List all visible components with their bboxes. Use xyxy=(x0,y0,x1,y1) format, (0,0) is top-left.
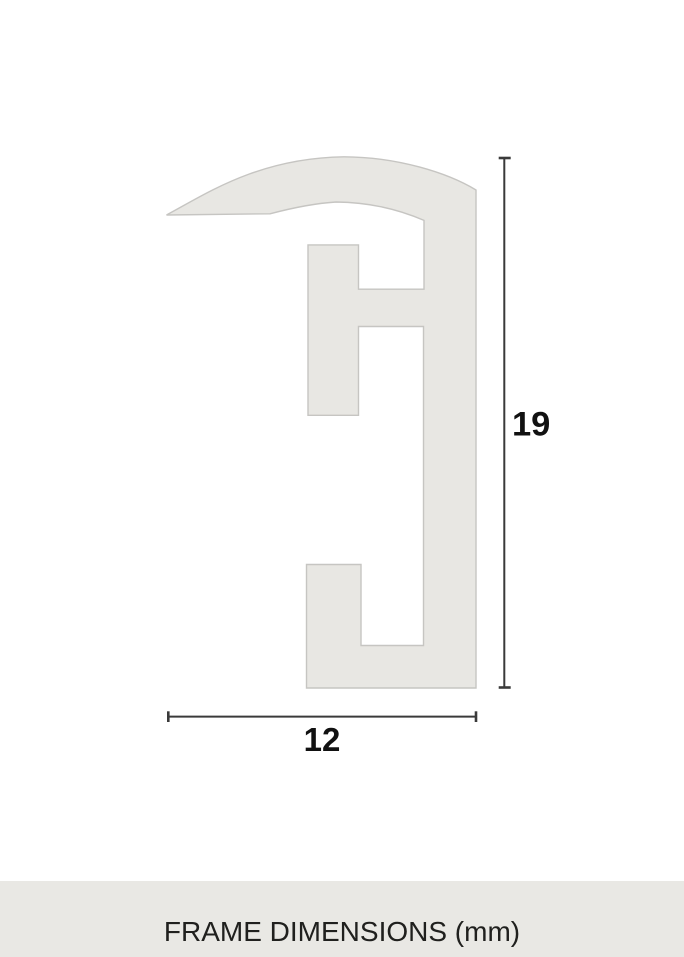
svg-text:19: 19 xyxy=(512,405,550,443)
svg-text:12: 12 xyxy=(304,721,341,758)
